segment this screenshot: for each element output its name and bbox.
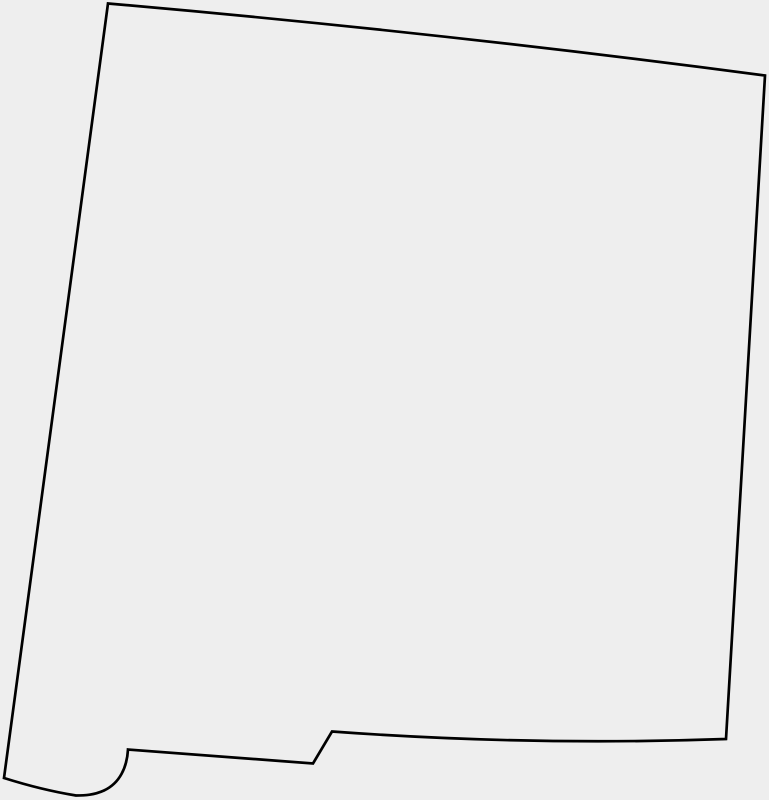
map-canvas bbox=[0, 0, 769, 800]
new-mexico-outline bbox=[4, 4, 765, 796]
state-outline-map bbox=[0, 0, 769, 800]
